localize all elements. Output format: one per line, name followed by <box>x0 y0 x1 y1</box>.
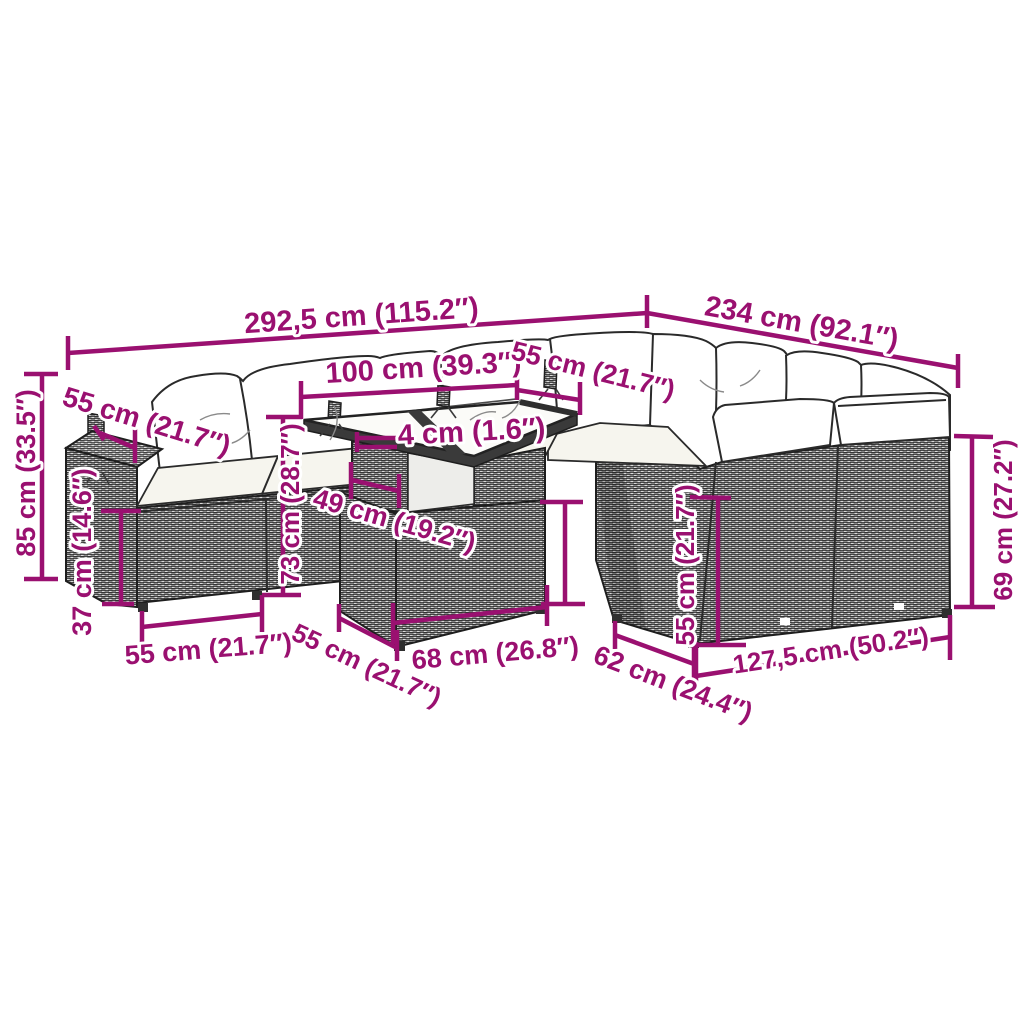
svg-text:37 cm (14.6″): 37 cm (14.6″) <box>67 468 97 636</box>
svg-text:69 cm (27.2″): 69 cm (27.2″) <box>988 439 1018 600</box>
svg-text:73 cm (28.7″): 73 cm (28.7″) <box>275 423 305 584</box>
svg-text:55 cm (21.7″): 55 cm (21.7″) <box>670 484 700 645</box>
svg-text:85 cm (33.5″): 85 cm (33.5″) <box>11 389 41 557</box>
